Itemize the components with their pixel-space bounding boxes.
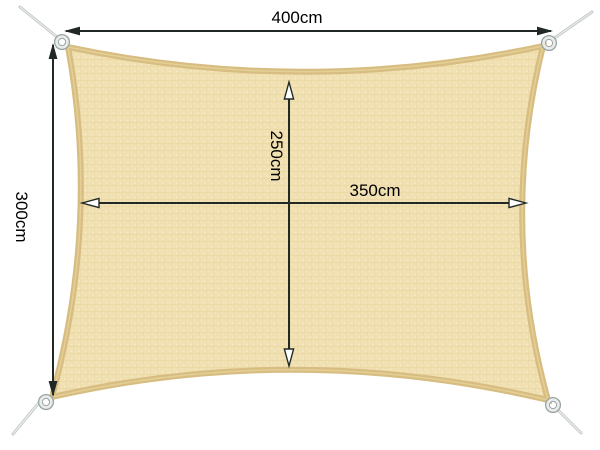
- rope-bottom-left-highlight: [13, 399, 42, 434]
- inner-height-label: 250cm: [267, 126, 285, 186]
- rope-top-left-highlight: [20, 7, 57, 37]
- corner-ring-top-right: [542, 36, 557, 51]
- inner-width-label: 350cm: [345, 182, 405, 200]
- rope-bottom-right-highlight: [557, 409, 581, 433]
- dimension-outer-height: [49, 43, 58, 397]
- corner-ring-bottom-right: [546, 398, 561, 413]
- rope-top-right-highlight: [553, 12, 592, 39]
- outer-width-label: 400cm: [267, 9, 327, 27]
- corner-ring-bottom-left: [39, 395, 54, 410]
- diagram-canvas: [0, 0, 600, 450]
- arrowhead-right-solid: [537, 27, 553, 36]
- shade-sail-diagram: 400cm 300cm 250cm 350cm: [0, 0, 600, 450]
- shade-sail-fabric: [52, 46, 548, 400]
- arrowhead-left-solid: [64, 27, 80, 36]
- outer-height-label: 300cm: [12, 187, 30, 247]
- dimension-outer-width: [64, 27, 553, 36]
- corner-ring-top-left: [55, 35, 70, 50]
